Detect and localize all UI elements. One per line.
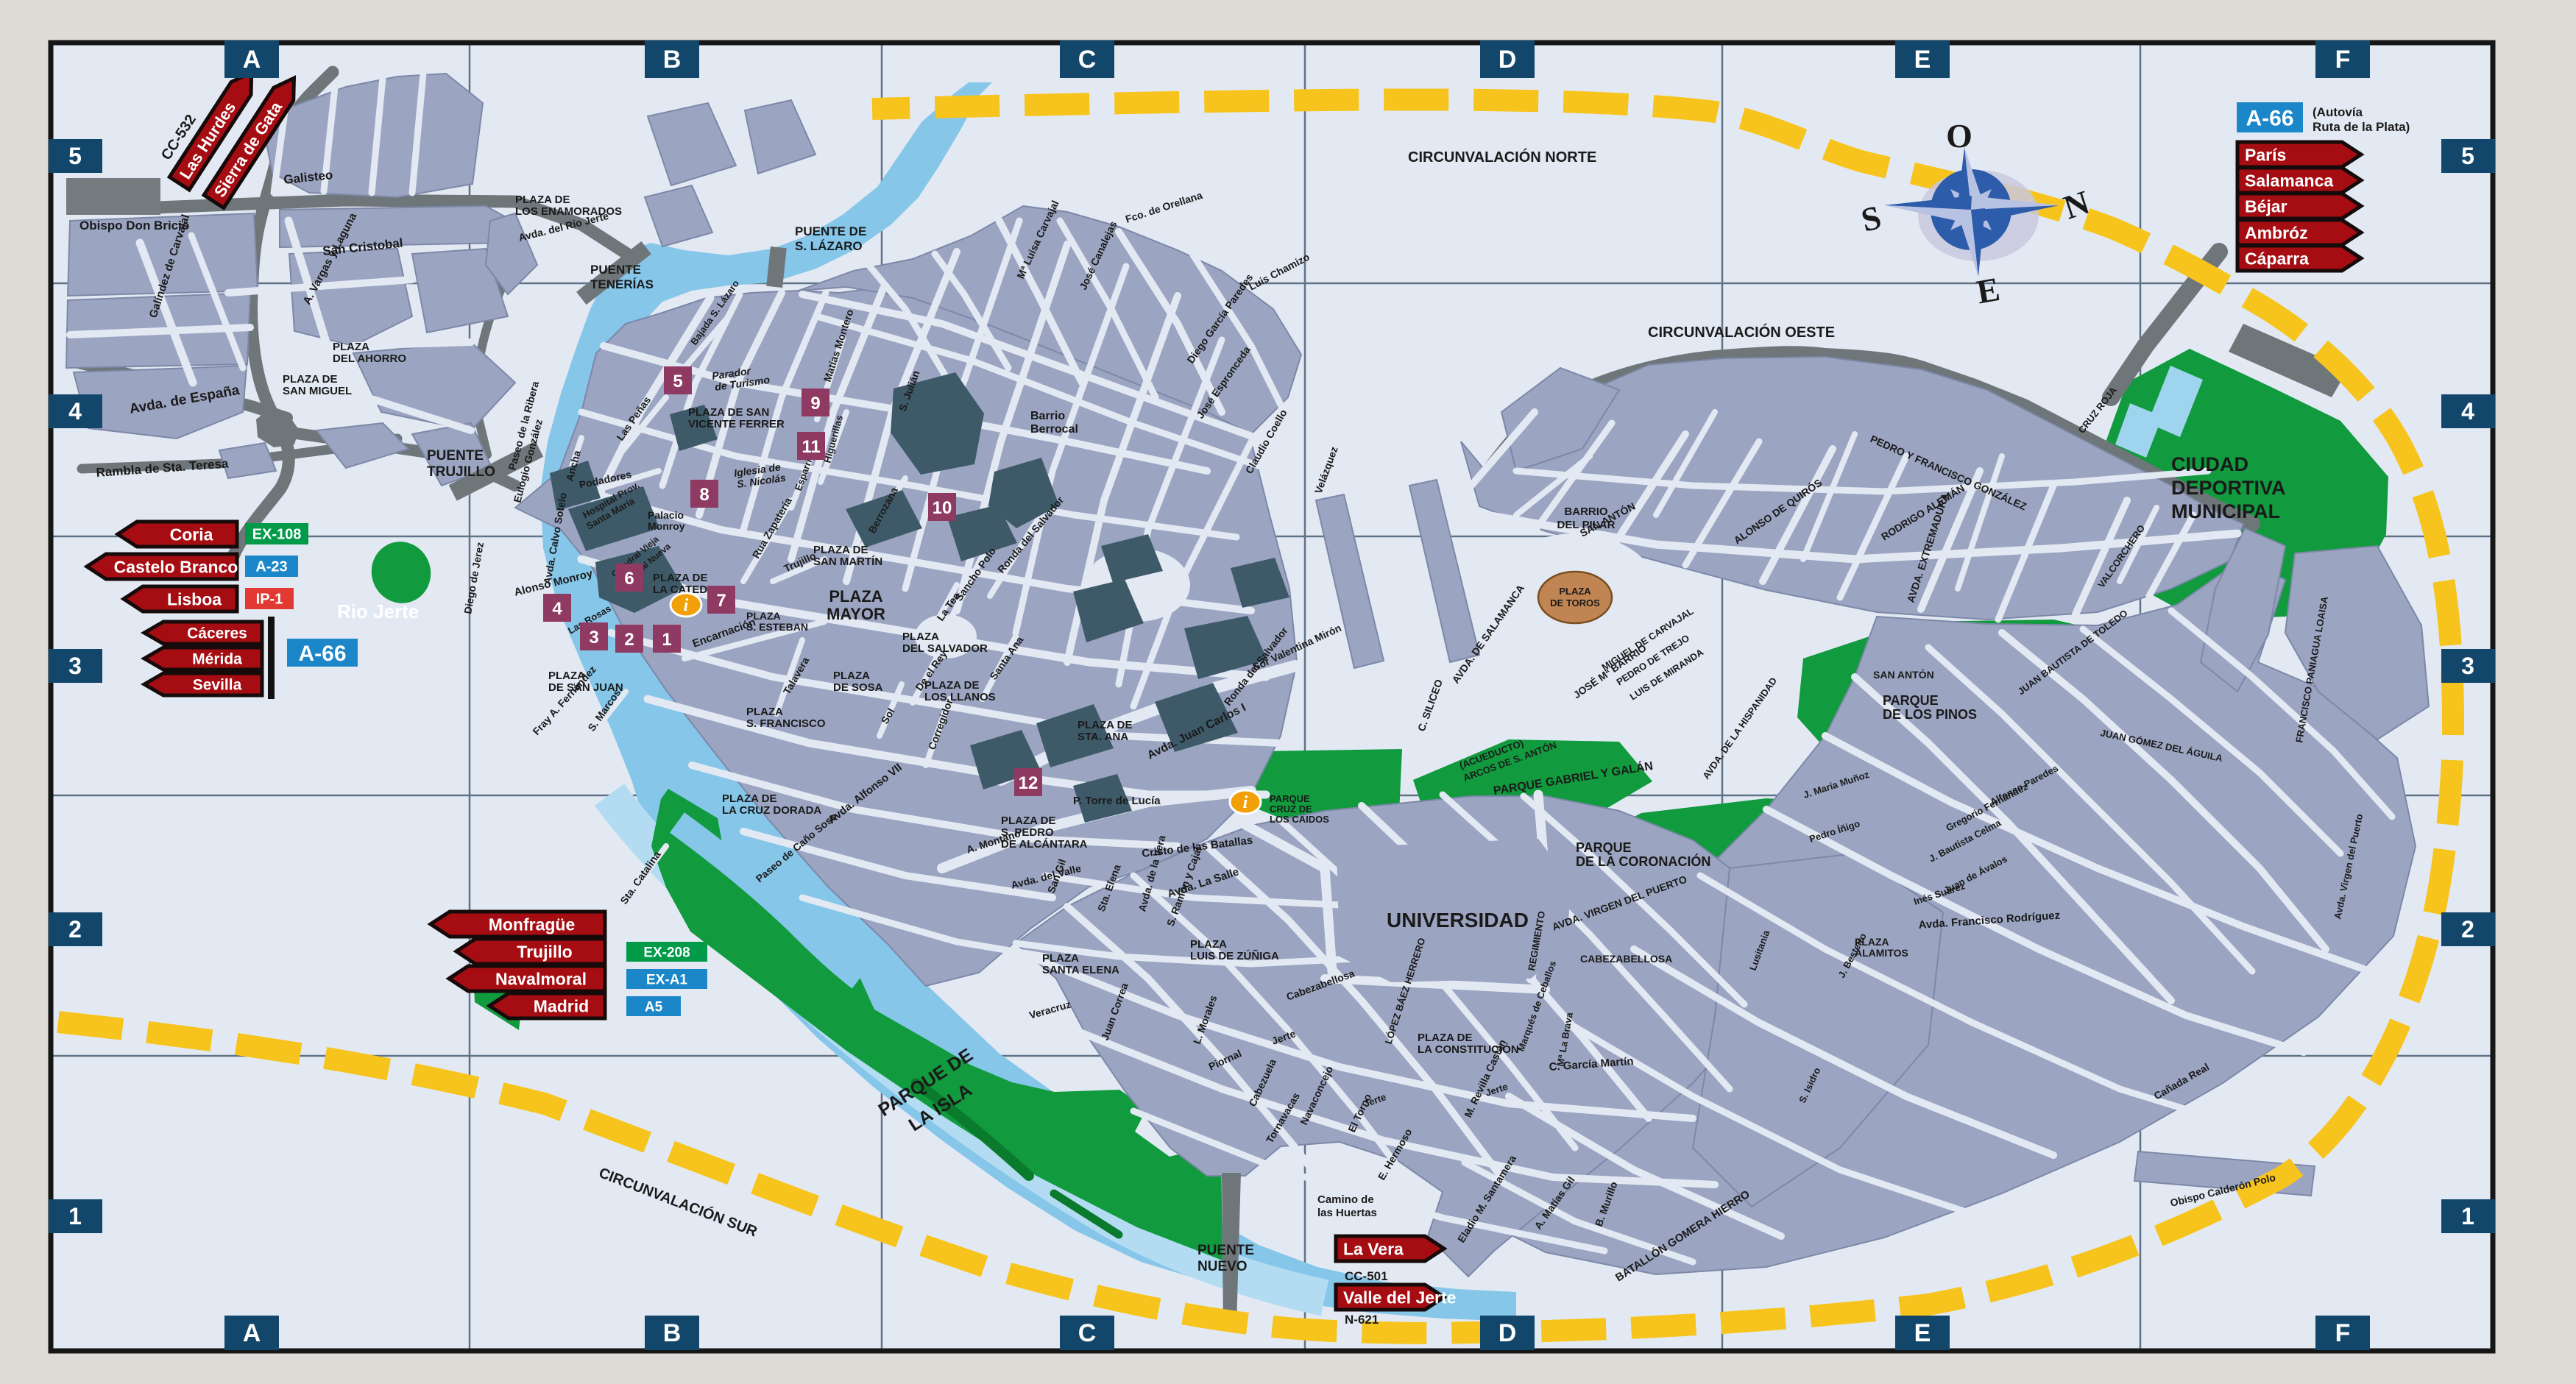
- svg-text:CRUZ DE: CRUZ DE: [1270, 803, 1312, 815]
- svg-text:PARQUE: PARQUE: [1576, 840, 1632, 855]
- svg-text:E: E: [1914, 1319, 1931, 1347]
- svg-text:TENERÍAS: TENERÍAS: [590, 277, 654, 291]
- svg-text:D: D: [1498, 1319, 1517, 1347]
- svg-text:Lisboa: Lisboa: [167, 589, 222, 608]
- svg-text:LOS CAIDOS: LOS CAIDOS: [1270, 814, 1329, 825]
- svg-text:5: 5: [2461, 143, 2474, 169]
- svg-text:las Huertas: las Huertas: [1317, 1207, 1377, 1219]
- svg-text:LA CONSTITUCIÓN: LA CONSTITUCIÓN: [1418, 1043, 1519, 1056]
- svg-text:Valle del Jerte: Valle del Jerte: [1343, 1288, 1456, 1307]
- svg-text:PLAZA DE: PLAZA DE: [722, 792, 776, 805]
- svg-text:A-66: A-66: [298, 642, 346, 666]
- svg-text:LOS LLANOS: LOS LLANOS: [924, 691, 996, 703]
- svg-text:PUENTE: PUENTE: [427, 448, 484, 464]
- svg-text:A: A: [243, 46, 261, 74]
- svg-text:PARQUE: PARQUE: [1883, 693, 1939, 708]
- svg-text:ALAMITOS: ALAMITOS: [1855, 947, 1908, 959]
- svg-text:5: 5: [673, 372, 682, 391]
- svg-text:TRUJILLO: TRUJILLO: [427, 464, 495, 480]
- svg-text:Palacio: Palacio: [648, 509, 684, 521]
- svg-text:SAN MARTÍN: SAN MARTÍN: [813, 556, 882, 568]
- svg-text:3: 3: [2461, 653, 2474, 679]
- svg-text:PLAZA: PLAZA: [746, 706, 783, 718]
- svg-text:MUNICIPAL: MUNICIPAL: [2171, 500, 2280, 522]
- svg-text:S. FRANCISCO: S. FRANCISCO: [746, 717, 826, 730]
- svg-text:1: 1: [68, 1203, 82, 1229]
- svg-text:Ruta de la Plata): Ruta de la Plata): [2313, 120, 2410, 134]
- svg-text:i: i: [1243, 793, 1248, 812]
- svg-text:DE LOS PINOS: DE LOS PINOS: [1883, 707, 1977, 722]
- svg-text:C: C: [1078, 46, 1097, 74]
- svg-text:Berrocal: Berrocal: [1030, 423, 1078, 436]
- svg-text:Barrio: Barrio: [1030, 410, 1065, 422]
- svg-text:CABEZABELLOSA: CABEZABELLOSA: [1580, 953, 1672, 965]
- svg-text:D: D: [1498, 46, 1517, 74]
- svg-text:PARQUE: PARQUE: [1270, 793, 1310, 804]
- svg-text:DEPORTIVA: DEPORTIVA: [2171, 477, 2286, 499]
- svg-text:10: 10: [933, 498, 952, 518]
- svg-text:PLAZA DE: PLAZA DE: [1078, 719, 1132, 731]
- svg-text:N-621: N-621: [1345, 1313, 1379, 1327]
- svg-text:S. ESTEBAN: S. ESTEBAN: [746, 621, 808, 633]
- svg-text:UNIVERSIDAD: UNIVERSIDAD: [1387, 909, 1529, 931]
- svg-text:PLAZA DE: PLAZA DE: [813, 544, 868, 556]
- svg-text:STA. ANA: STA. ANA: [1078, 731, 1128, 743]
- svg-text:París: París: [2245, 145, 2286, 164]
- svg-text:EX-A1: EX-A1: [646, 972, 687, 987]
- svg-text:i: i: [684, 596, 689, 615]
- svg-text:Mérida: Mérida: [192, 651, 242, 668]
- svg-text:IP-1: IP-1: [256, 592, 283, 608]
- svg-text:DEL AHORRO: DEL AHORRO: [333, 352, 406, 365]
- svg-text:F: F: [2335, 1319, 2351, 1347]
- svg-text:4: 4: [2461, 398, 2474, 425]
- svg-text:2: 2: [624, 630, 634, 650]
- svg-text:7: 7: [716, 591, 726, 611]
- svg-text:PLAZA: PLAZA: [829, 587, 882, 606]
- svg-text:Cáceres: Cáceres: [187, 625, 247, 642]
- svg-text:12: 12: [1019, 773, 1038, 793]
- svg-text:8: 8: [699, 485, 709, 505]
- svg-text:EX-208: EX-208: [643, 945, 690, 960]
- svg-text:LOS ENAMORADOS: LOS ENAMORADOS: [515, 205, 622, 218]
- svg-text:Monfragüe: Monfragüe: [489, 915, 576, 934]
- svg-text:Camino de: Camino de: [1317, 1193, 1374, 1206]
- svg-text:PUENTE: PUENTE: [1197, 1243, 1254, 1258]
- svg-text:MAYOR: MAYOR: [827, 605, 885, 623]
- svg-text:LA CRUZ DORADA: LA CRUZ DORADA: [722, 804, 821, 817]
- svg-text:CIRCUNVALACIÓN OESTE: CIRCUNVALACIÓN OESTE: [1648, 323, 1835, 341]
- svg-text:A5: A5: [645, 999, 663, 1015]
- svg-text:2: 2: [2461, 916, 2474, 943]
- svg-text:CIRCUNVALACIÓN NORTE: CIRCUNVALACIÓN NORTE: [1408, 148, 1596, 166]
- svg-text:4: 4: [552, 599, 562, 619]
- svg-text:S. LÁZARO: S. LÁZARO: [795, 239, 863, 253]
- svg-text:PLAZA: PLAZA: [333, 341, 369, 353]
- svg-text:SAN MIGUEL: SAN MIGUEL: [283, 385, 352, 397]
- svg-text:Trujillo: Trujillo: [517, 942, 572, 961]
- svg-text:Ambróz: Ambróz: [2245, 223, 2308, 242]
- svg-text:PLAZA DE: PLAZA DE: [283, 373, 337, 386]
- svg-text:PLAZA: PLAZA: [833, 670, 870, 682]
- svg-text:Monroy: Monroy: [648, 520, 685, 532]
- svg-text:PLAZA: PLAZA: [746, 610, 781, 622]
- svg-text:(Autovía: (Autovía: [2313, 105, 2363, 119]
- svg-text:Cáparra: Cáparra: [2245, 249, 2309, 268]
- svg-text:Coria: Coria: [170, 525, 213, 544]
- svg-text:Navalmoral: Navalmoral: [495, 969, 587, 988]
- svg-text:4: 4: [68, 398, 82, 425]
- svg-text:Castelo Branco: Castelo Branco: [114, 557, 238, 576]
- svg-text:P. Torre de Lucía: P. Torre de Lucía: [1073, 795, 1161, 807]
- svg-text:C: C: [1078, 1319, 1097, 1347]
- svg-text:A-66: A-66: [2246, 106, 2293, 130]
- svg-text:CC-501: CC-501: [1345, 1269, 1388, 1283]
- svg-text:Sevilla: Sevilla: [193, 677, 242, 694]
- svg-text:Salamanca: Salamanca: [2245, 171, 2333, 190]
- svg-text:PLAZA: PLAZA: [902, 631, 939, 643]
- svg-text:DE LA CORONACIÓN: DE LA CORONACIÓN: [1576, 854, 1710, 869]
- svg-text:2: 2: [68, 916, 82, 943]
- svg-text:CIUDAD: CIUDAD: [2171, 453, 2248, 475]
- svg-text:PLAZA DE: PLAZA DE: [653, 572, 707, 584]
- svg-text:Obispo Don Bricio: Obispo Don Bricio: [79, 219, 189, 233]
- svg-text:Béjar: Béjar: [2245, 196, 2287, 216]
- svg-text:A: A: [243, 1319, 261, 1347]
- svg-text:F: F: [2335, 46, 2351, 74]
- svg-text:PLAZA: PLAZA: [1559, 586, 1591, 597]
- svg-text:B: B: [663, 46, 682, 74]
- svg-text:Madrid: Madrid: [534, 996, 589, 1015]
- svg-text:PLAZA DE: PLAZA DE: [924, 679, 979, 692]
- svg-text:6: 6: [624, 569, 634, 589]
- svg-text:1: 1: [2461, 1203, 2474, 1229]
- svg-text:EX-108: EX-108: [252, 527, 302, 543]
- svg-text:5: 5: [68, 143, 82, 169]
- svg-text:A-23: A-23: [255, 559, 287, 575]
- svg-text:SAN ANTÓN: SAN ANTÓN: [1873, 668, 1934, 681]
- svg-text:E: E: [1914, 46, 1931, 74]
- svg-text:O: O: [1946, 117, 1972, 155]
- svg-text:3: 3: [589, 628, 598, 647]
- svg-text:PUENTE: PUENTE: [590, 263, 641, 277]
- svg-text:PLAZA: PLAZA: [1042, 952, 1079, 965]
- svg-text:La Vera: La Vera: [1343, 1239, 1404, 1258]
- svg-text:SANTA ELENA: SANTA ELENA: [1042, 964, 1119, 976]
- svg-text:B: B: [663, 1319, 682, 1347]
- svg-text:DE TOROS: DE TOROS: [1550, 597, 1600, 608]
- svg-text:NUEVO: NUEVO: [1197, 1259, 1248, 1274]
- svg-text:Rio Jerte: Rio Jerte: [337, 600, 419, 622]
- svg-text:PLAZA: PLAZA: [1190, 938, 1227, 951]
- svg-text:LUIS DE ZÚÑIGA: LUIS DE ZÚÑIGA: [1190, 949, 1279, 962]
- svg-text:DE SOSA: DE SOSA: [833, 681, 883, 694]
- svg-text:9: 9: [810, 394, 820, 414]
- svg-text:PLAZA DE SAN: PLAZA DE SAN: [688, 406, 769, 419]
- svg-text:PLAZA DE: PLAZA DE: [515, 194, 570, 206]
- svg-text:11: 11: [802, 437, 820, 457]
- svg-text:3: 3: [68, 653, 82, 679]
- svg-text:PLAZA DE: PLAZA DE: [1418, 1032, 1472, 1044]
- svg-text:1: 1: [662, 630, 671, 650]
- svg-text:PLAZA DE: PLAZA DE: [1001, 815, 1055, 827]
- svg-text:PUENTE DE: PUENTE DE: [795, 224, 866, 238]
- svg-text:VICENTE FERRER: VICENTE FERRER: [688, 418, 785, 430]
